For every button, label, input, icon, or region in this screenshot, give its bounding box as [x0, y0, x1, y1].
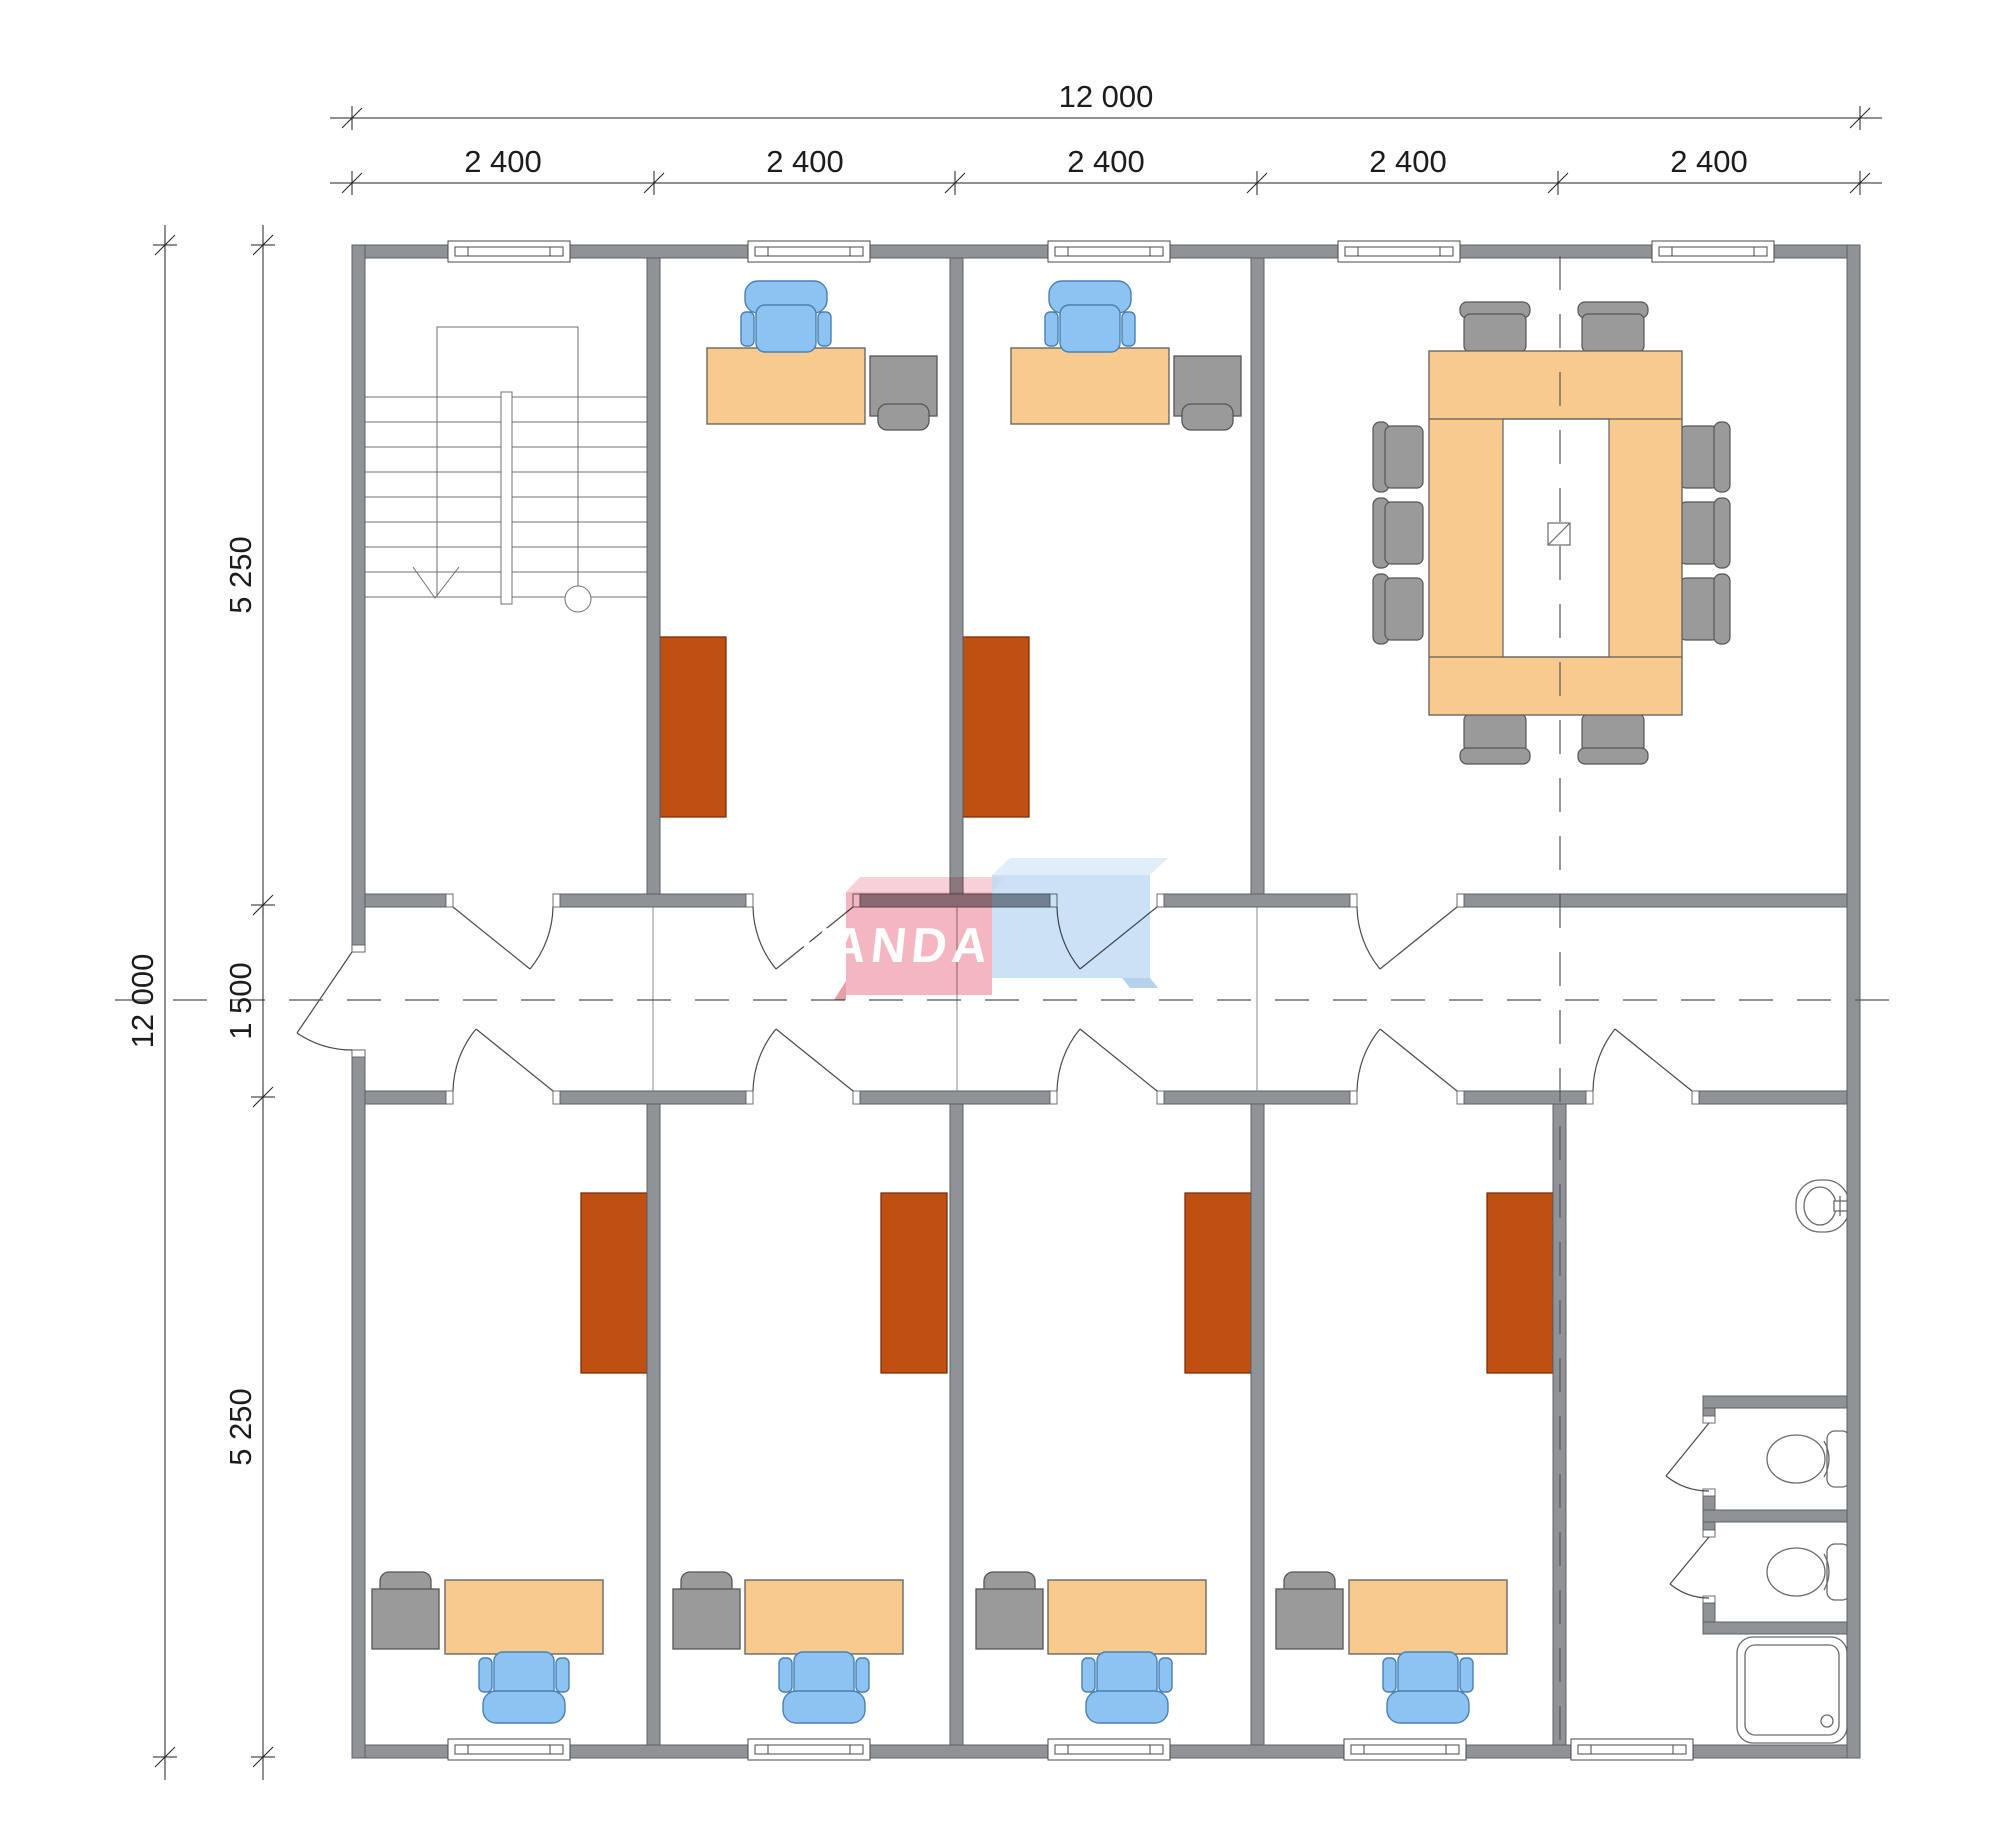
wall-corridor: [560, 1091, 746, 1104]
wall-stall: [1703, 1522, 1715, 1530]
bathroom: [1737, 1180, 1854, 1743]
logo-blue-box: [992, 875, 1150, 978]
wall-stall: [1703, 1622, 1847, 1634]
desk: [1349, 1580, 1507, 1654]
logo-blue-fold: [1122, 978, 1158, 988]
office-top-1: [660, 281, 937, 817]
office-bottom-3: [976, 1193, 1251, 1723]
desk: [445, 1580, 603, 1654]
wall-partition: [647, 258, 660, 894]
wall-partition: [647, 1104, 660, 1745]
wall-corridor: [1464, 1091, 1586, 1104]
entrance-door-swing: [297, 952, 352, 1050]
dim-left-total: 12 000: [125, 954, 160, 1049]
office-bottom-4: [1276, 1193, 1553, 1723]
door-swing: [1593, 1029, 1692, 1091]
office-bottom-1: [372, 1193, 647, 1723]
dim-left-seg-3: 5 250: [223, 1388, 258, 1466]
logo-pink-box-top: [846, 877, 1005, 892]
door-swing: [1057, 1029, 1157, 1091]
wall-corridor: [860, 1091, 1050, 1104]
wall-exterior-right: [1847, 245, 1860, 1758]
office-top-2: [963, 281, 1241, 817]
wall-corridor: [1164, 894, 1350, 907]
wall-corridor: [365, 1091, 446, 1104]
dim-top-seg-1: 2 400: [464, 144, 542, 179]
floor-plan-page: 12 000 2 400 2 400 2 400 2 400 2 400 12 …: [0, 0, 2000, 1848]
cabinet: [881, 1193, 947, 1373]
wall-exterior-left: [352, 245, 365, 952]
wall-partition: [950, 258, 963, 894]
dim-left-seg-1: 5 250: [223, 536, 258, 614]
wall-exterior-left: [352, 1050, 365, 1758]
cabinet: [1185, 1193, 1251, 1373]
wall-stall: [1703, 1510, 1847, 1522]
wall-corridor: [365, 894, 446, 907]
desk: [1011, 348, 1169, 424]
desk: [707, 348, 865, 424]
cabinet: [581, 1193, 647, 1373]
logo-blue-box-top: [992, 858, 1168, 875]
shower-tray-icon: [1737, 1637, 1847, 1743]
cabinet: [660, 637, 726, 817]
door-swing: [453, 907, 553, 969]
cabinet: [1487, 1193, 1553, 1373]
stair-start-symbol: [565, 586, 591, 612]
logo-text: VANDA: [794, 919, 995, 973]
door-swing: [1357, 1029, 1457, 1091]
desk: [745, 1580, 903, 1654]
door-swing: [453, 1029, 553, 1091]
door-swing: [1357, 907, 1457, 969]
door-swing: [753, 1029, 853, 1091]
stall-door-swing: [1670, 1537, 1709, 1598]
wall-partition: [1251, 258, 1264, 894]
wall-corridor: [1464, 894, 1847, 907]
dim-top-seg-5: 2 400: [1670, 144, 1748, 179]
wall-partition: [1251, 1104, 1264, 1745]
office-bottom-2: [673, 1193, 947, 1723]
dim-top-seg-4: 2 400: [1369, 144, 1447, 179]
stair-rail: [501, 392, 512, 604]
dim-top-seg-2: 2 400: [766, 144, 844, 179]
dim-top-total: 12 000: [1059, 79, 1154, 114]
desk: [1048, 1580, 1206, 1654]
wall-partition: [950, 1104, 963, 1745]
wall-stall: [1703, 1603, 1715, 1622]
sink-icon: [1796, 1180, 1851, 1232]
wall-corridor: [560, 894, 746, 907]
logo-pink-fold: [834, 981, 846, 1000]
cabinet: [963, 637, 1029, 817]
floor-plan-drawing: 12 000 2 400 2 400 2 400 2 400 2 400 12 …: [0, 0, 2000, 1848]
dim-top-seg-3: 2 400: [1067, 144, 1145, 179]
vanda-logo: VANDA: [794, 858, 1168, 1000]
stairwell: [365, 327, 647, 612]
dim-left-seg-2: 1 500: [223, 962, 258, 1040]
stall-door-swing: [1666, 1423, 1709, 1491]
wall-stall: [1703, 1396, 1847, 1408]
wall-stall: [1703, 1496, 1715, 1510]
wall-corridor: [1699, 1091, 1847, 1104]
wall-corridor: [1164, 1091, 1350, 1104]
meeting-room: [1373, 302, 1730, 764]
wall-stall: [1703, 1408, 1715, 1416]
